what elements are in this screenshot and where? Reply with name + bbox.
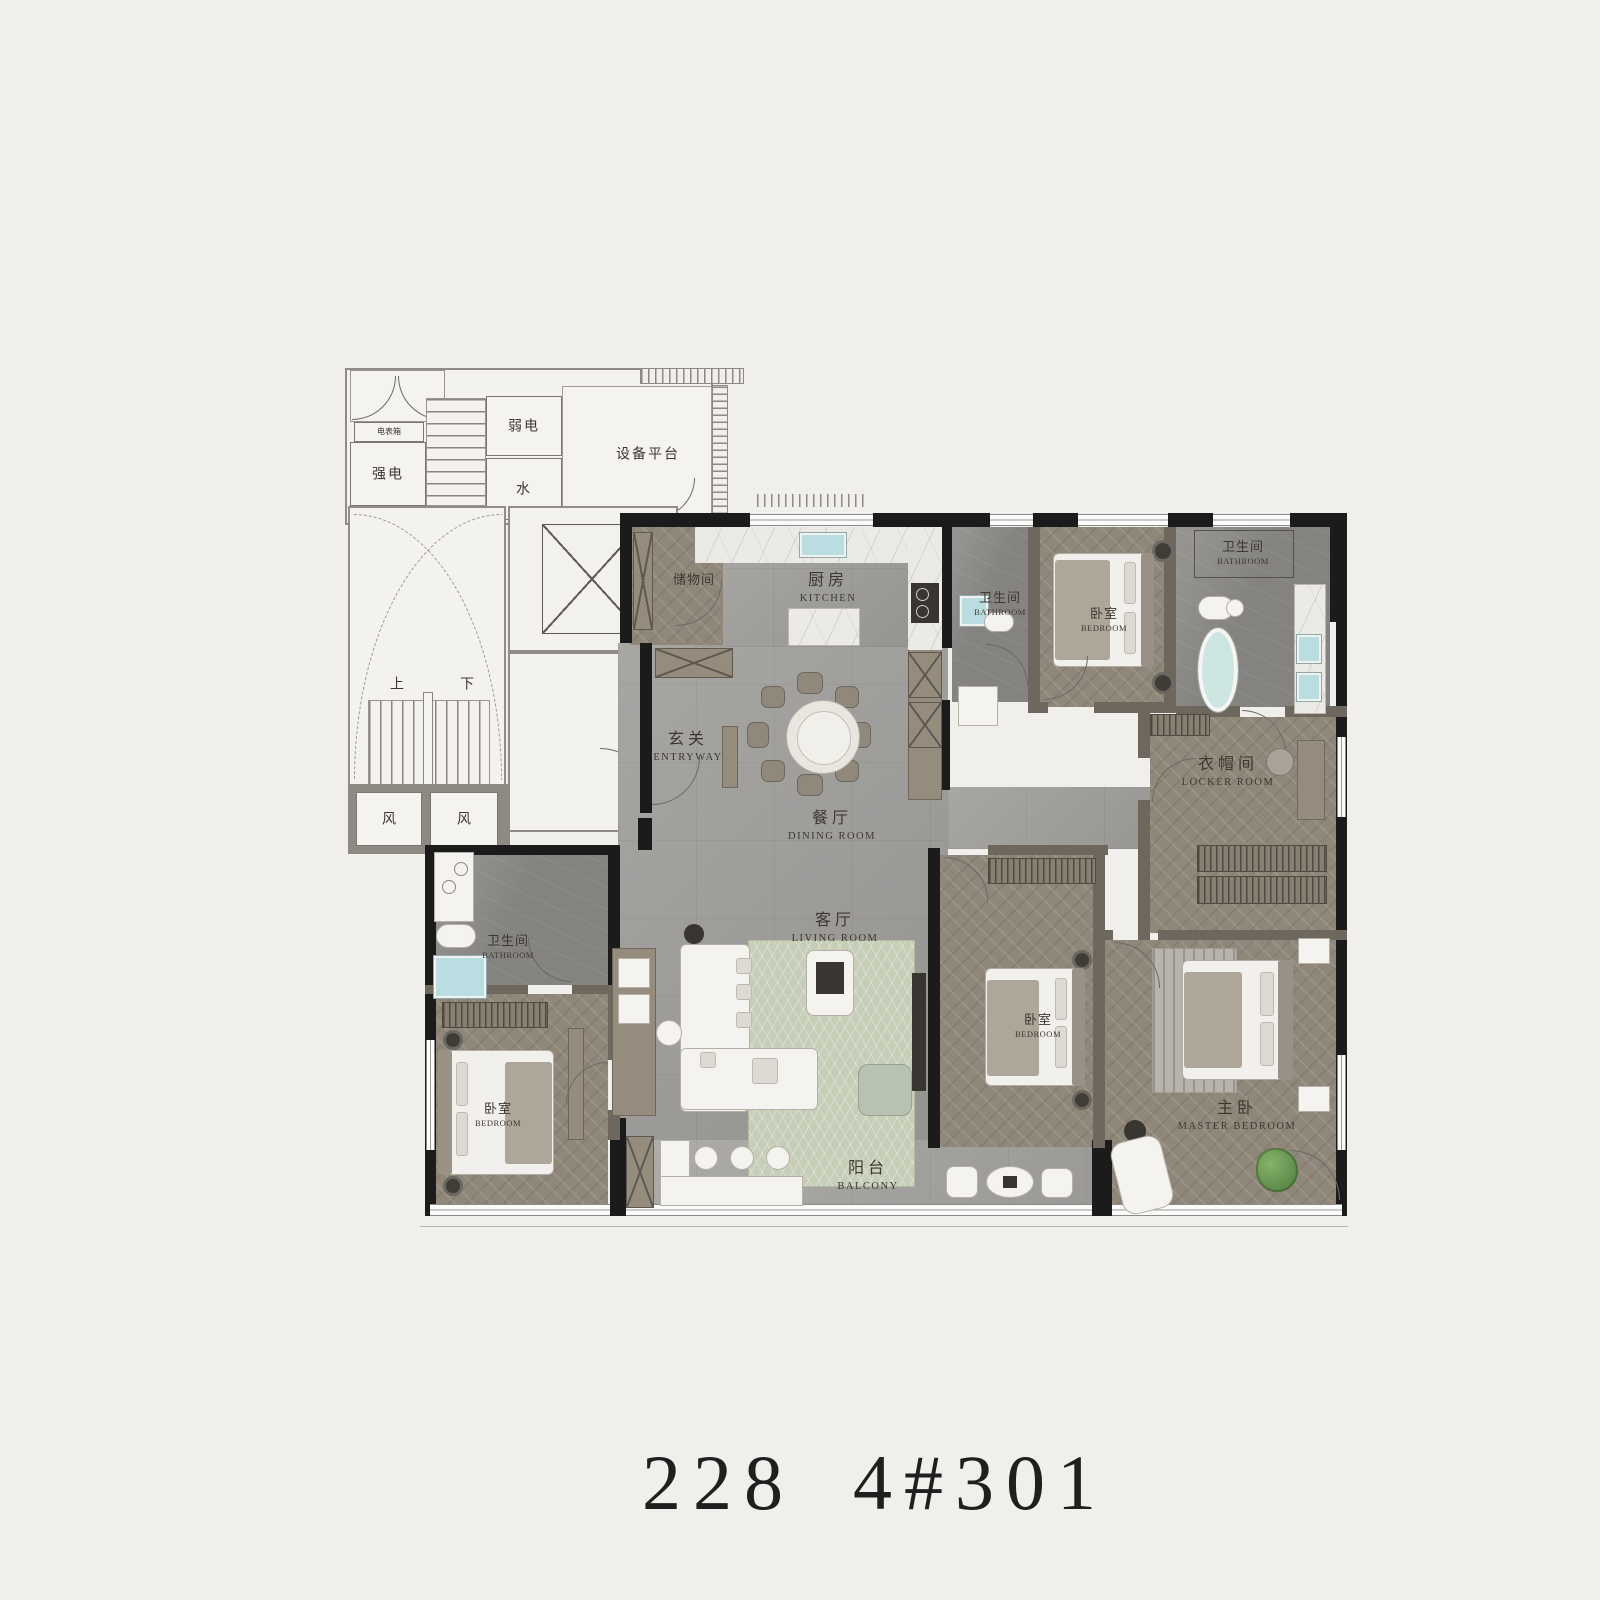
floor-lamp	[684, 924, 704, 944]
dryer	[618, 994, 650, 1024]
wall	[620, 513, 750, 527]
window-bath-right	[1213, 514, 1290, 526]
hatch-band-top	[640, 368, 744, 384]
coffee-table-tray	[816, 962, 844, 994]
dining-table-top	[797, 711, 851, 765]
label-living-zh: 客厅	[792, 911, 879, 931]
label-balcony-en: BALCONY	[837, 1180, 898, 1193]
label-vent-right-zh: 风	[457, 811, 473, 829]
nightstand	[1152, 540, 1174, 562]
window-bed-top	[1078, 514, 1168, 526]
wall	[1138, 800, 1150, 940]
label-dining: 餐厅DINING ROOM	[788, 809, 876, 843]
label-bath-mid-en: BATHROOM	[974, 607, 1026, 618]
label-meter-box-zh: 电表箱	[377, 427, 401, 437]
wall	[928, 848, 940, 1148]
nightstand	[1152, 672, 1174, 694]
label-equipment-platform-zh: 设备平台	[616, 446, 680, 464]
stair-rail	[423, 692, 433, 788]
kitchen-sink	[800, 533, 846, 557]
wall	[1168, 513, 1213, 527]
window-kitchen	[750, 514, 873, 526]
label-bed-top: 卧室BEDROOM	[1081, 606, 1127, 634]
balcony-stool	[766, 1146, 790, 1170]
balcony-cabinet	[626, 1136, 654, 1208]
bathroom-sink	[1297, 635, 1321, 663]
wardrobe	[1197, 845, 1327, 872]
label-storage-zh: 储物间	[673, 572, 715, 588]
label-bath-mid-zh: 卫生间	[974, 590, 1026, 606]
label-locker-en: LOCKER ROOM	[1182, 776, 1275, 789]
label-vent-right: 风	[457, 811, 473, 829]
label-dining-en: DINING ROOM	[788, 830, 876, 843]
wall	[988, 845, 1108, 855]
wall	[620, 513, 632, 643]
wall	[1033, 513, 1078, 527]
locker-cabinet	[1297, 740, 1325, 820]
pantry-cabinet-x	[908, 652, 942, 698]
nightstand	[443, 1176, 463, 1196]
window-balcony-glazing	[430, 1204, 1342, 1216]
wall	[1028, 527, 1040, 712]
label-bed-top-zh: 卧室	[1081, 606, 1127, 622]
label-stair-up-zh: 上	[390, 676, 406, 694]
label-entryway: 玄关ENTRYWAY	[653, 730, 722, 764]
label-bed-left: 卧室BEDROOM	[475, 1101, 521, 1129]
wall	[1105, 930, 1113, 940]
unit-title: 2284#301	[150, 1438, 1600, 1528]
label-entryway-zh: 玄关	[653, 730, 722, 750]
balcony-stool	[730, 1146, 754, 1170]
burner	[916, 588, 929, 601]
label-master: 主卧MASTER BEDROOM	[1178, 1099, 1297, 1133]
label-meter-box: 电表箱	[377, 427, 401, 437]
sofa-pillow	[752, 1058, 778, 1084]
nightstand	[1072, 950, 1092, 970]
dining-chair	[761, 686, 785, 708]
label-bed-mid-zh: 卧室	[1015, 1012, 1061, 1028]
label-dining-zh: 餐厅	[788, 809, 876, 829]
bathroom-sink	[1297, 673, 1321, 701]
wardrobe	[1150, 714, 1210, 736]
window-bath-mid	[990, 514, 1033, 526]
sofa-pillow	[700, 1052, 716, 1068]
wall	[1093, 848, 1105, 1148]
stair-flight-upper	[426, 398, 486, 506]
wall	[873, 513, 990, 527]
bed-pillow	[1124, 562, 1136, 604]
bed-blanket	[1184, 972, 1242, 1068]
label-equipment-platform: 设备平台	[616, 446, 680, 464]
label-stair-down: 下	[460, 676, 476, 694]
label-strong-electric: 强电	[372, 466, 404, 484]
site-line	[420, 1226, 1348, 1227]
shower-tray	[434, 956, 486, 998]
accent-chair	[858, 1064, 912, 1116]
sink-basin	[454, 862, 468, 876]
label-bed-left-zh: 卧室	[475, 1101, 521, 1117]
tv-console	[912, 973, 926, 1091]
label-bath-left-zh: 卫生间	[482, 933, 534, 949]
wardrobe	[1197, 876, 1327, 904]
label-bed-left-en: BEDROOM	[475, 1118, 521, 1129]
shower-tray	[958, 686, 998, 726]
balcony-table-decor	[1003, 1176, 1017, 1188]
label-kitchen: 厨房KITCHEN	[800, 571, 857, 605]
bed-headboard	[1278, 960, 1293, 1080]
label-vent-left: 风	[382, 811, 398, 829]
window-master	[1337, 1055, 1346, 1150]
sofa-pillow	[736, 958, 752, 974]
bed-headboard	[1141, 553, 1154, 667]
unit-area: 228	[642, 1438, 795, 1528]
wall	[640, 643, 652, 813]
bed-pillow	[1260, 1022, 1274, 1066]
wardrobe	[442, 1002, 548, 1028]
dining-chair	[797, 774, 823, 796]
sink-basin	[442, 880, 456, 894]
label-bed-mid: 卧室BEDROOM	[1015, 1012, 1061, 1040]
label-weak-electric-zh: 弱电	[508, 418, 540, 436]
nightstand	[443, 1030, 463, 1050]
dining-chair	[797, 672, 823, 694]
label-entryway-en: ENTRYWAY	[653, 751, 722, 764]
label-storage: 储物间	[673, 572, 715, 588]
balcony-chair	[1041, 1168, 1073, 1198]
label-bath-right-zh: 卫生间	[1217, 539, 1269, 555]
label-bath-left-en: BATHROOM	[482, 950, 534, 961]
nightstand	[1298, 938, 1330, 964]
bed-pillow	[456, 1112, 468, 1156]
wall	[1092, 1140, 1112, 1216]
wall	[1094, 702, 1176, 713]
label-water-zh: 水	[516, 481, 532, 499]
window-locker	[1337, 737, 1346, 817]
floorplan-canvas: 电表箱 强电 弱电 水 设备平台 上 下 风 风 储物间 厨房KITCHEN 卫…	[0, 0, 1600, 1600]
pantry-cabinet-x	[908, 702, 942, 748]
label-balcony-zh: 阳台	[837, 1159, 898, 1179]
bed-headboard	[1072, 968, 1085, 1086]
wardrobe	[988, 858, 1096, 884]
label-kitchen-en: KITCHEN	[800, 592, 857, 605]
label-vent-left-zh: 风	[382, 811, 398, 829]
entry-console	[722, 726, 738, 788]
sofa-pillow	[736, 984, 752, 1000]
nightstand	[1072, 1090, 1092, 1110]
label-bath-right: 卫生间BATHROOM	[1217, 539, 1269, 567]
label-living-en: LIVING ROOM	[792, 932, 879, 945]
label-bed-mid-en: BEDROOM	[1015, 1029, 1061, 1040]
storage-cabinet	[633, 532, 653, 630]
label-kitchen-zh: 厨房	[800, 571, 857, 591]
burner	[916, 605, 929, 618]
bed-headboard	[438, 1050, 452, 1175]
kitchen-island	[788, 608, 860, 646]
dining-chair	[747, 722, 769, 748]
bed-pillow	[1260, 972, 1274, 1016]
label-bath-mid: 卫生间BATHROOM	[974, 590, 1026, 618]
toilet-lid	[1226, 599, 1244, 617]
entry-shoe-cabinet	[655, 648, 733, 678]
washer	[618, 958, 650, 988]
label-locker: 衣帽间LOCKER ROOM	[1182, 755, 1275, 789]
label-master-zh: 主卧	[1178, 1099, 1297, 1119]
hatch-kitchen-window	[757, 494, 867, 507]
sofa-pillow	[736, 1012, 752, 1028]
label-weak-electric: 弱电	[508, 418, 540, 436]
toilet	[436, 924, 476, 948]
label-stair-down-zh: 下	[460, 676, 476, 694]
balcony-chair	[946, 1166, 978, 1198]
label-locker-zh: 衣帽间	[1182, 755, 1275, 775]
window-bed-left	[426, 1040, 435, 1150]
label-strong-electric-zh: 强电	[372, 466, 404, 484]
label-master-en: MASTER BEDROOM	[1178, 1120, 1297, 1133]
unit-number: 4#301	[853, 1438, 1108, 1528]
side-table	[656, 1020, 682, 1046]
label-bath-left: 卫生间BATHROOM	[482, 933, 534, 961]
label-living: 客厅LIVING ROOM	[792, 911, 879, 945]
balcony-counter	[660, 1176, 803, 1206]
label-bath-right-en: BATHROOM	[1217, 556, 1269, 567]
wall	[1138, 712, 1150, 758]
balcony-stool	[694, 1146, 718, 1170]
label-bed-top-en: BEDROOM	[1081, 623, 1127, 634]
label-stair-up: 上	[390, 676, 406, 694]
bed-pillow	[456, 1062, 468, 1106]
wall	[1330, 527, 1346, 622]
nightstand	[1298, 1086, 1330, 1112]
label-water: 水	[516, 481, 532, 499]
wall	[638, 818, 652, 850]
bathtub	[1198, 628, 1238, 712]
label-balcony: 阳台BALCONY	[837, 1159, 898, 1193]
wall	[1028, 702, 1048, 713]
dining-chair	[761, 760, 785, 782]
hatch-band-right	[712, 385, 728, 522]
